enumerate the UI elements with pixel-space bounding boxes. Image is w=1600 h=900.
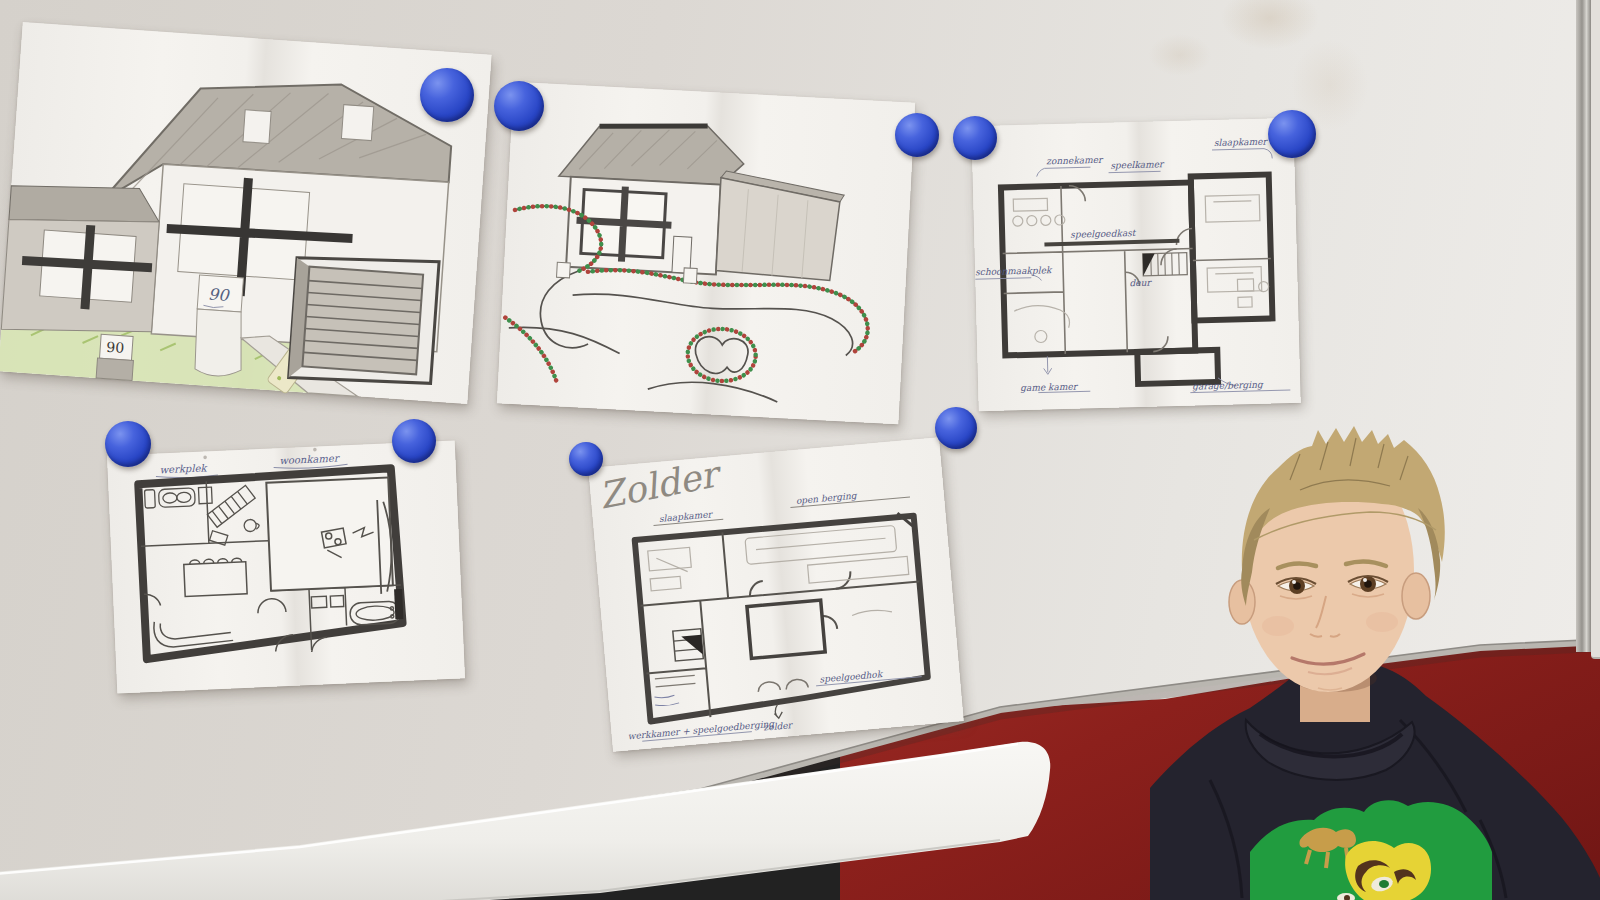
roof-window: [341, 105, 373, 141]
room-label: slaapkamer: [1214, 136, 1269, 147]
boy-figure: [1150, 420, 1600, 900]
garden-sign: [683, 268, 697, 284]
room-label: woonkamer: [279, 453, 341, 467]
room-label: game kamer: [1020, 382, 1079, 394]
room-label: open berging: [795, 491, 858, 506]
room-label: zonnekamer: [1046, 155, 1104, 167]
drawing-house-garden: [497, 82, 915, 425]
attic-plan-sketch: Zolder slaapkamer open berging: [588, 437, 963, 752]
room-label: schoonmaakplek: [975, 265, 1053, 277]
drawing-house-front: 90 90: [0, 22, 492, 404]
room-label: speelkamer: [1110, 159, 1165, 170]
room-label: zolder: [763, 720, 794, 733]
door-sign-number: 90: [208, 285, 231, 306]
outer-walls: [635, 516, 930, 722]
room-label: speelgoedhok: [819, 669, 884, 685]
classroom-photo-scene: 90 90: [0, 0, 1600, 900]
room-label: werkplek: [159, 462, 208, 476]
boy: [1150, 420, 1600, 900]
center-room: [747, 600, 825, 658]
garden-sign: [557, 262, 571, 278]
dormer-arcs: [758, 679, 809, 692]
magnet: [494, 81, 544, 131]
magnet: [392, 419, 436, 463]
table-and-couch: [151, 558, 249, 648]
magnet: [935, 407, 977, 449]
big-room: [266, 477, 393, 590]
mailbox: [96, 358, 133, 380]
lawn-sign-number: 90: [106, 339, 125, 356]
living-plan-sketch: werkplek woonkamer: [107, 441, 465, 694]
room-label: deur: [1129, 278, 1152, 289]
ear: [1402, 573, 1430, 619]
roof-window: [243, 110, 271, 144]
kitchen: [144, 485, 259, 549]
room-label: slaapkamer: [659, 509, 714, 524]
front-door: [193, 309, 245, 378]
magnet: [953, 116, 997, 160]
drawing-floorplan-ground: zonnekamer speelkamer slaapkamer speelgo…: [971, 118, 1300, 411]
house-front-sketch: 90 90: [0, 22, 492, 404]
ground-plan-sketch: zonnekamer speelkamer slaapkamer speelgo…: [971, 118, 1300, 411]
magnet: [895, 113, 939, 157]
drawing-floorplan-attic: Zolder slaapkamer open berging: [588, 437, 963, 752]
house-garden-sketch: [497, 82, 915, 425]
magnet: [1268, 110, 1316, 158]
magnet: [569, 442, 603, 476]
dark-corner: [394, 589, 403, 619]
drawing-floorplan-living: werkplek woonkamer: [107, 441, 465, 694]
furniture: [647, 525, 912, 633]
magnet: [105, 421, 151, 467]
magnet: [420, 68, 474, 122]
room-label: speelgoedkast: [1070, 228, 1137, 240]
room-label: garage/berging: [1192, 380, 1264, 392]
cabinet-bar: [1044, 241, 1179, 245]
